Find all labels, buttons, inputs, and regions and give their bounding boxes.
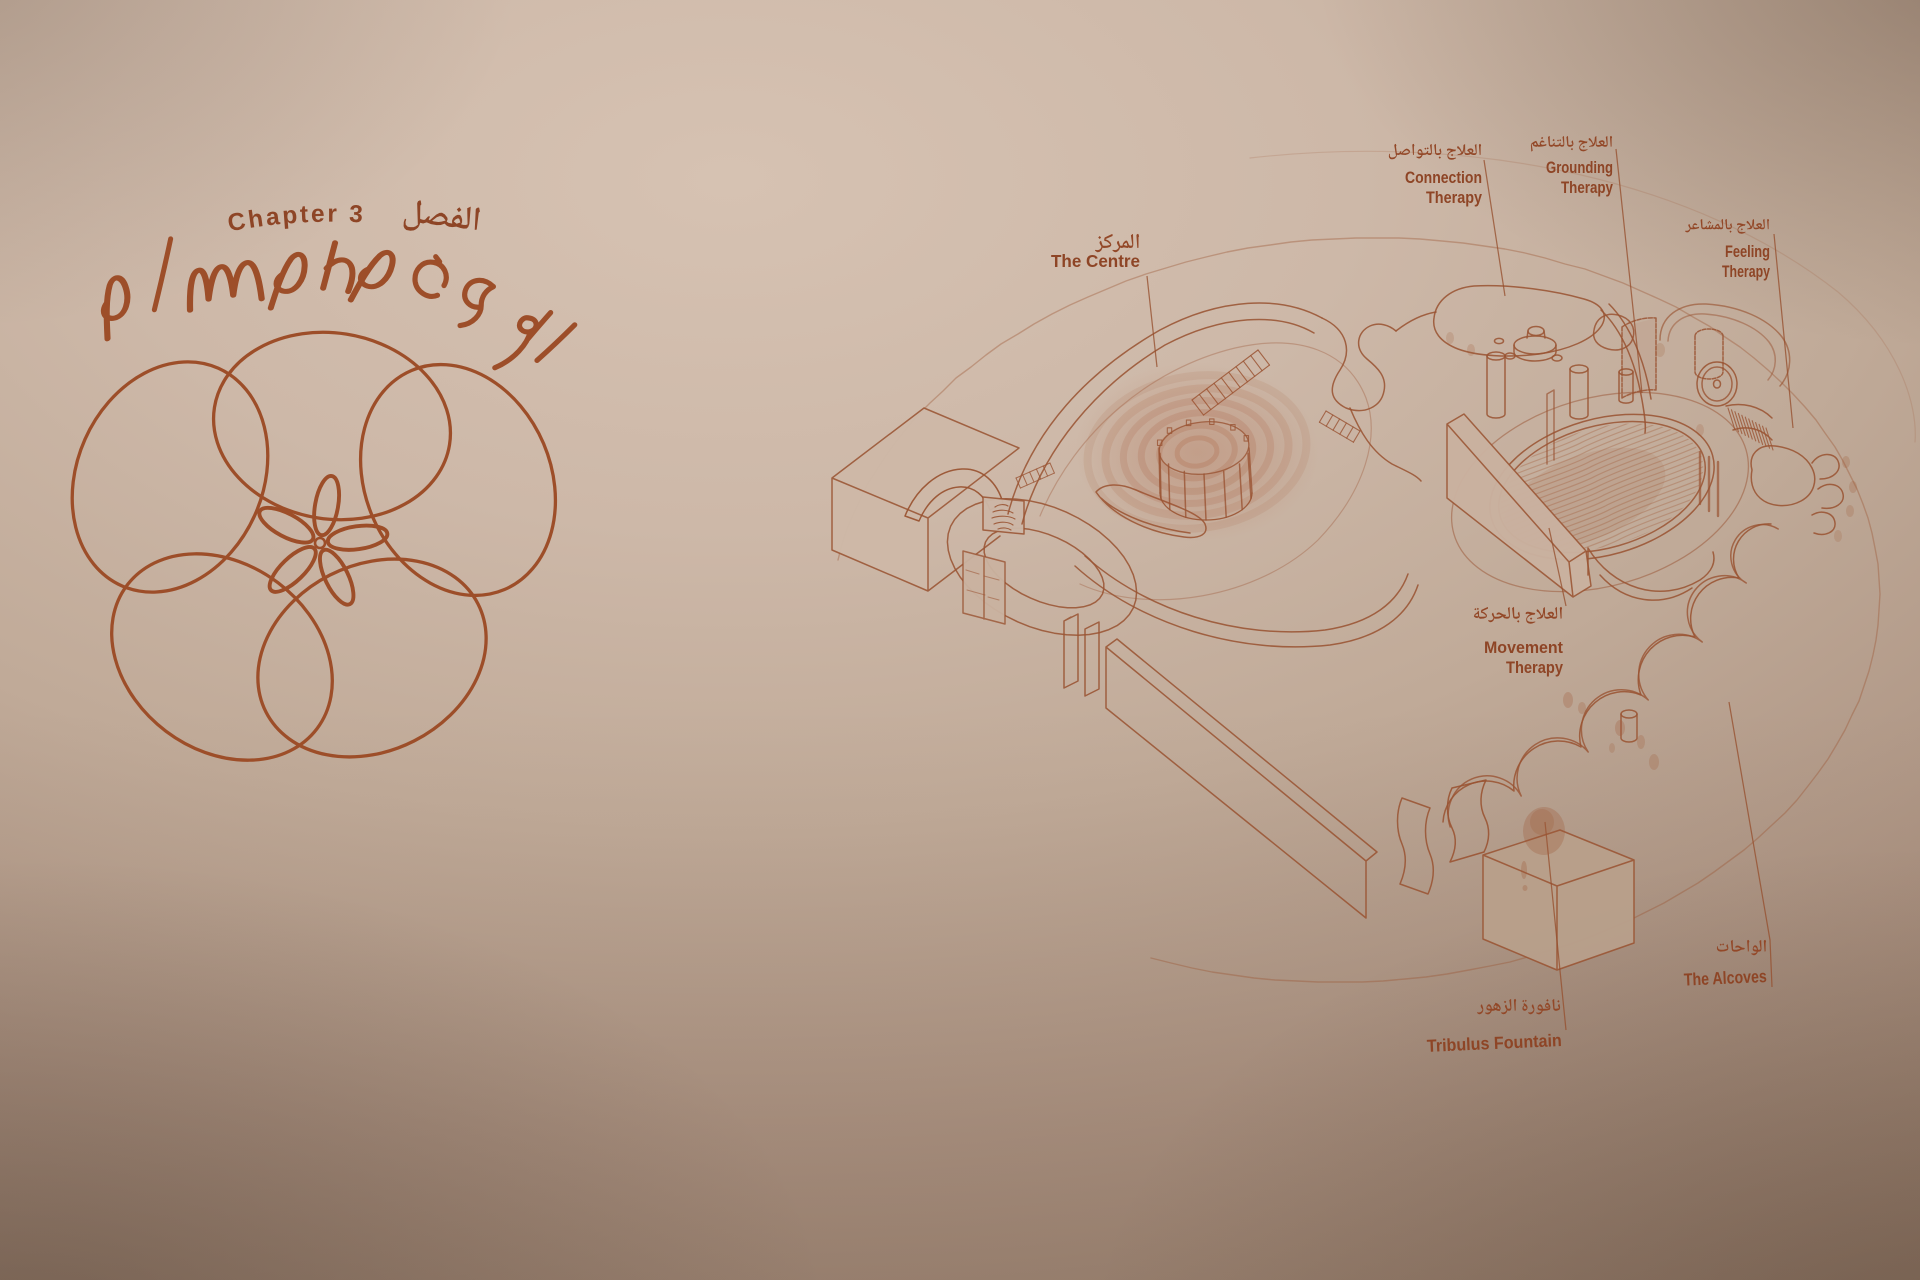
svg-text:Connection: Connection [1405,168,1482,187]
svg-text:Feeling: Feeling [1725,242,1770,261]
svg-text:Grounding: Grounding [1546,158,1613,177]
svg-text:Tribulus Fountain: Tribulus Fountain [1426,1030,1562,1056]
svg-text:Movement: Movement [1484,638,1563,657]
svg-text:Chapter 3: Chapter 3 [226,201,366,238]
svg-text:Therapy: Therapy [1561,178,1613,197]
svg-text:The Alcoves: The Alcoves [1683,966,1767,990]
svg-text:Therapy: Therapy [1506,658,1563,677]
svg-text:The Centre: The Centre [1051,251,1140,271]
svg-text:Therapy: Therapy [1426,188,1482,207]
svg-text:Therapy: Therapy [1722,262,1770,281]
